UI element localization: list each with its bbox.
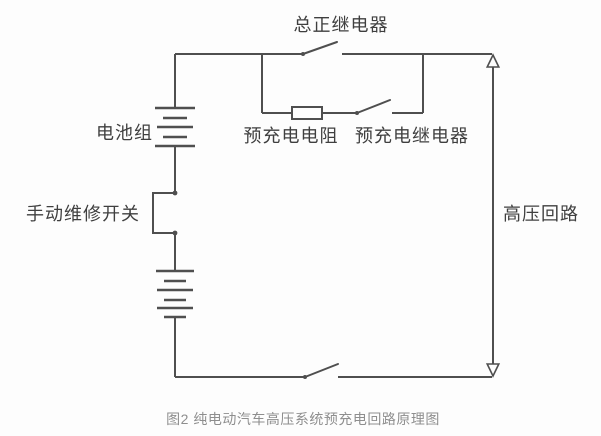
msd-detour-bracket [153,193,175,233]
hv-arrowhead-up-icon [487,55,499,67]
label-high-voltage-loop: 高压回路 [503,204,579,224]
bottom-switch [303,364,338,379]
precharge-resistor-symbol [292,107,322,119]
hv-arrowhead-down-icon [487,364,499,376]
high-voltage-loop-arrow [487,55,499,376]
precharge-branch [262,54,423,119]
precharge-circuit-diagram: 总正继电器 电池组 预充电电阻 预充电继电器 手动维修开关 高压回路 图2 纯电… [0,0,601,436]
switch-blade [303,42,337,54]
bottom-switch-blade [305,364,338,377]
figure-container: 总正继电器 电池组 预充电电阻 预充电继电器 手动维修开关 高压回路 图2 纯电… [0,0,601,436]
precharge-relay-blade [357,100,390,113]
main-loop-wires [175,54,492,377]
label-main-positive-relay: 总正继电器 [294,15,389,35]
label-battery-pack: 电池组 [96,123,153,143]
battery-symbol-upper [155,108,195,146]
label-manual-service-switch: 手动维修开关 [26,204,140,224]
manual-service-switch-symbol [153,191,177,236]
battery-symbol-lower [156,271,194,317]
main-positive-relay-switch [301,42,337,56]
figure-caption: 图2 纯电动汽车高压系统预充电回路原理图 [166,411,440,427]
label-precharge-resistor: 预充电电阻 [244,126,339,146]
label-precharge-relay: 预充电继电器 [355,126,469,146]
